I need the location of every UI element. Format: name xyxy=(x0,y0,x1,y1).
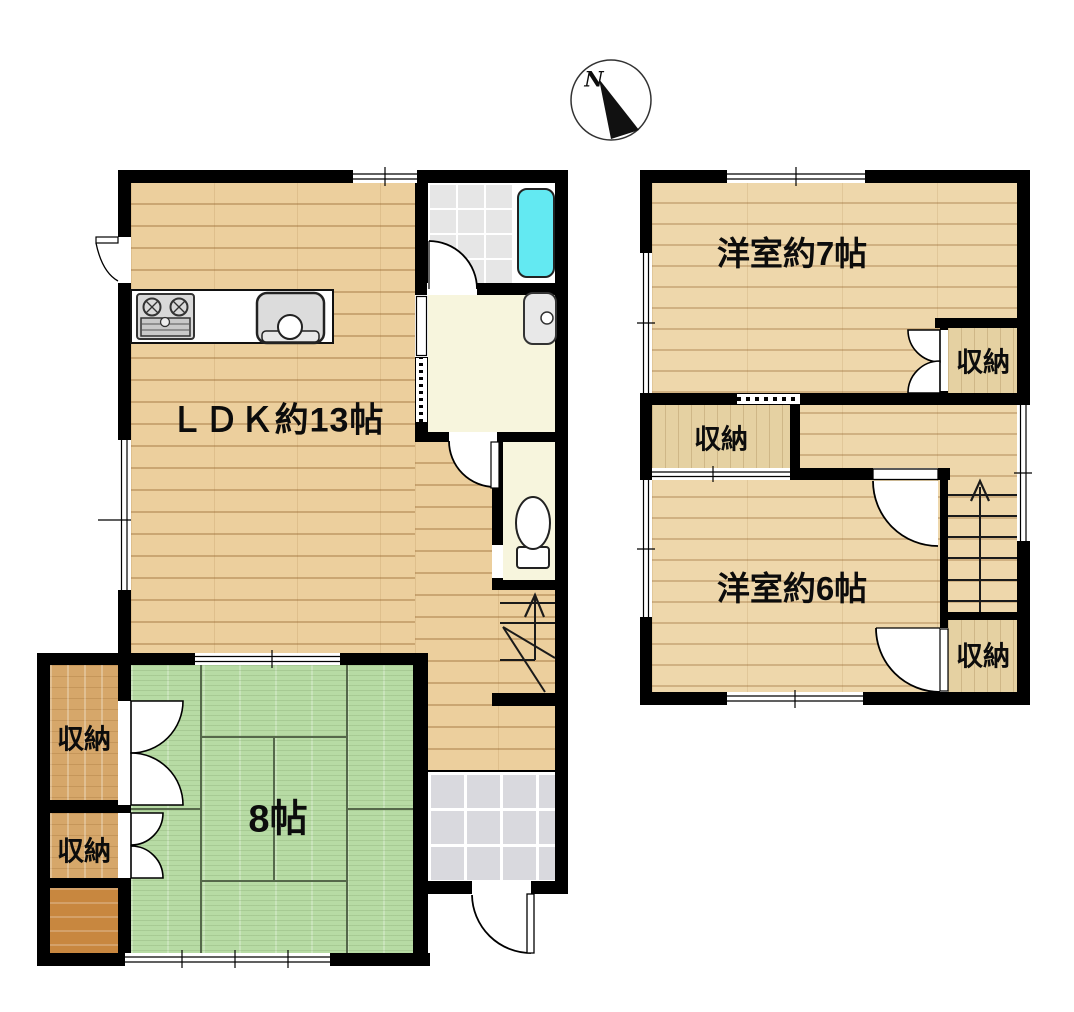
stove-icon xyxy=(137,294,194,339)
closet2f-bottom-door-swing xyxy=(876,628,948,692)
closet-upper-label: 収納 xyxy=(57,718,111,757)
western-room6-label: 洋室約6帖 xyxy=(717,562,867,610)
window-lines-1f xyxy=(98,167,427,968)
closet-lower-label: 収納 xyxy=(57,830,111,869)
tatami-label: 8帖 xyxy=(248,788,307,843)
closet2f-top-door-swing xyxy=(908,330,940,393)
washbasin-icon xyxy=(524,293,556,344)
bath-door-swing xyxy=(429,241,477,289)
toilet-icon xyxy=(516,497,550,568)
ldk-label: ＬＤＫ約13帖 xyxy=(170,393,385,442)
closet-lower-door-swing xyxy=(131,813,163,878)
compass-north-label: N xyxy=(584,67,603,92)
kitchen-sink-icon xyxy=(257,293,324,343)
stairs-2f xyxy=(948,481,1017,612)
floor-plan-canvas: ＬＤＫ約13帖 8帖 収納 収納 洋室約7帖 洋室約6帖 収納 収納 収納 N xyxy=(0,0,1074,1012)
closet-upper-door-swing xyxy=(131,701,183,805)
room6-door-swing xyxy=(873,469,938,546)
washroom-door-swing xyxy=(449,441,499,488)
closet-2f-left-label: 収納 xyxy=(694,418,748,457)
linework-overlay xyxy=(0,0,1074,1012)
western-room7-label: 洋室約7帖 xyxy=(717,227,867,275)
back-door-swing xyxy=(96,237,118,281)
stairs-1f xyxy=(500,595,555,692)
compass-icon xyxy=(571,60,651,140)
bathtub-icon xyxy=(518,189,554,277)
entrance-door-swing xyxy=(472,894,534,953)
kitchen-counter xyxy=(131,290,333,343)
closet-2f-top-label: 収納 xyxy=(956,341,1010,380)
closet-2f-bottom-label: 収納 xyxy=(956,635,1010,674)
